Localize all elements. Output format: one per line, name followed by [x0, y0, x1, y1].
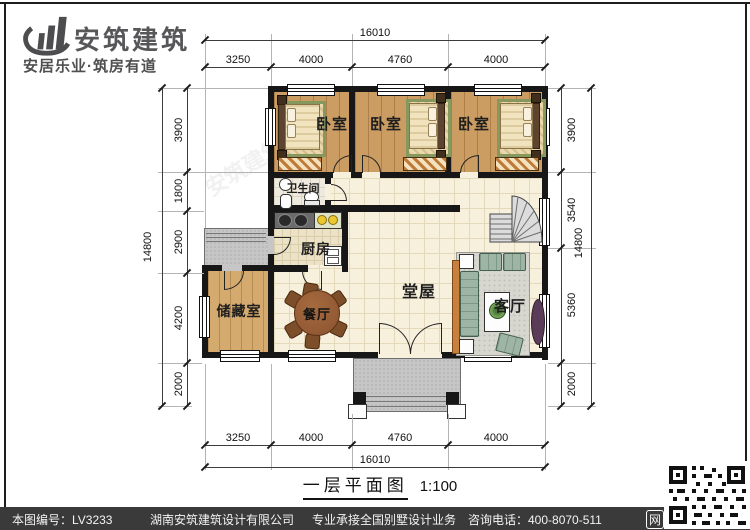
- pillow: [523, 107, 532, 121]
- dim-bottom-seg3: 4760: [380, 432, 420, 444]
- dim-line: [205, 67, 545, 68]
- logo-tagline: 安居乐业·筑房有道: [23, 55, 157, 76]
- front-porch-step: [366, 396, 446, 397]
- bathroom-label: 卫生间: [283, 180, 323, 196]
- frame-left: [4, 2, 6, 507]
- stove-burner: [278, 214, 292, 227]
- dim-left-seg5: 2000: [173, 364, 185, 404]
- footer-bar: 本图编号：LV3233 湖南安筑建筑设计有限公司 专业承接全国别墅设计业务 咨询…: [0, 507, 750, 530]
- qr-code: [664, 461, 750, 529]
- dim-line: [205, 445, 545, 446]
- bedroom3-window: [474, 84, 522, 96]
- dim-right-seg1: 3900: [566, 110, 578, 150]
- pillow: [428, 107, 437, 121]
- squat-pan: [280, 194, 292, 209]
- floor-plan-sheet: 安筑建筑 安居乐业·筑房有道 安筑建筑 zjz·com 安筑建筑 安筑建筑 zj…: [0, 0, 750, 530]
- dining-south-window: [288, 350, 336, 362]
- sofa-three-seat: [460, 271, 479, 337]
- dim-right-overall: 14800: [573, 223, 585, 263]
- frame-right: [745, 2, 747, 507]
- dim-bottom-seg4: 4000: [476, 432, 516, 444]
- logo-building-icon: [22, 13, 72, 59]
- front-porch-step: [366, 401, 446, 402]
- dim-top-seg3: 4760: [380, 54, 420, 66]
- dim-left-overall: 14800: [142, 227, 154, 267]
- dim-bottom-seg1: 3250: [218, 432, 258, 444]
- footer-service: 专业承接全国别墅设计业务: [312, 511, 456, 528]
- dim-line: [591, 88, 592, 406]
- nightstand: [436, 93, 446, 103]
- porch-column-base: [348, 404, 367, 419]
- extension-line: [205, 364, 206, 470]
- wall-kitchen-east: [342, 212, 348, 272]
- tv-console: [531, 299, 545, 345]
- living-label: 客厅: [490, 295, 530, 316]
- wall-corridor-south: [268, 205, 460, 212]
- side-table: [459, 254, 474, 269]
- extension-line: [352, 34, 353, 86]
- west-porch-step: [206, 233, 266, 234]
- dim-top-overall: 16010: [355, 27, 395, 39]
- bedroom3-closet: [495, 157, 539, 171]
- pillow: [287, 124, 296, 138]
- drawing-title-block: 一层平面图 1:100: [250, 471, 510, 500]
- dim-right-seg4: 2000: [566, 364, 578, 404]
- bedroom3-label: 卧室: [456, 113, 492, 134]
- bedroom1-closet: [278, 157, 322, 171]
- west-porch-step: [206, 241, 266, 242]
- dim-top-seg2: 4000: [291, 54, 331, 66]
- sink-basin: [317, 215, 327, 225]
- dim-left-seg2: 1800: [173, 171, 185, 211]
- wall-storage-east: [268, 272, 274, 358]
- west-porch-step: [206, 237, 266, 238]
- storage-south-window: [220, 350, 260, 362]
- extension-line: [158, 273, 204, 274]
- pillow: [287, 108, 296, 122]
- kitchen-label: 厨房: [296, 239, 336, 259]
- armchair: [479, 253, 502, 271]
- dim-right-seg3: 5360: [566, 285, 578, 325]
- extension-line: [548, 248, 596, 249]
- pillow: [428, 123, 437, 137]
- dim-line: [187, 88, 188, 406]
- dim-left-seg3: 2900: [173, 222, 185, 262]
- dim-top-seg4: 4000: [476, 54, 516, 66]
- bedroom2-closet: [403, 157, 447, 171]
- extension-line: [448, 34, 449, 86]
- storage-label: 储藏室: [210, 301, 268, 321]
- stove-burner: [294, 214, 308, 227]
- toilet-tank: [304, 200, 320, 206]
- dim-top-seg1: 3250: [218, 54, 258, 66]
- bedroom1-window: [287, 84, 335, 96]
- wall-bedrooms-south: [268, 172, 548, 178]
- frame-top: [0, 2, 750, 4]
- dim-bottom-overall: 16010: [355, 454, 395, 466]
- extension-line: [158, 88, 268, 89]
- footer-company: 湖南安筑建筑设计有限公司: [150, 511, 294, 528]
- armchair: [503, 253, 526, 271]
- drawing-title: 一层平面图: [303, 471, 408, 500]
- dim-left-seg4: 4200: [173, 298, 185, 338]
- front-porch-step: [366, 406, 446, 407]
- dim-left-seg1: 3900: [173, 110, 185, 150]
- dining-label: 餐厅: [302, 304, 332, 323]
- drawing-scale: 1:100: [420, 478, 458, 495]
- dim-bottom-seg2: 4000: [291, 432, 331, 444]
- bedroom2-window: [377, 84, 425, 96]
- pillow: [523, 123, 532, 137]
- hall-label: 堂屋: [394, 278, 444, 302]
- extension-line: [271, 364, 272, 470]
- porch-column-base: [447, 404, 466, 419]
- dim-line: [205, 40, 545, 41]
- spiral-stairs: [484, 188, 546, 246]
- bedroom2-label: 卧室: [368, 113, 404, 134]
- side-table: [459, 339, 474, 354]
- footer-sheet-no: 本图编号：LV3233: [12, 511, 112, 528]
- front-porch: [353, 358, 461, 412]
- bedroom1-label: 卧室: [314, 113, 350, 134]
- extension-line: [545, 34, 546, 86]
- nightstand: [531, 93, 541, 103]
- extension-line: [545, 364, 546, 470]
- dim-line: [162, 88, 163, 406]
- storage-west-window: [199, 296, 210, 338]
- bedroom1-west-window: [265, 108, 276, 146]
- dim-line: [205, 467, 545, 468]
- footer-net-badge: 网: [646, 510, 664, 529]
- extension-line: [548, 172, 596, 173]
- logo-name: 安筑建筑: [74, 20, 190, 57]
- extension-line: [271, 34, 272, 86]
- sink-basin: [328, 215, 338, 225]
- extension-line: [158, 211, 204, 212]
- footer-phone: 咨询电话：400-8070-511: [468, 511, 602, 528]
